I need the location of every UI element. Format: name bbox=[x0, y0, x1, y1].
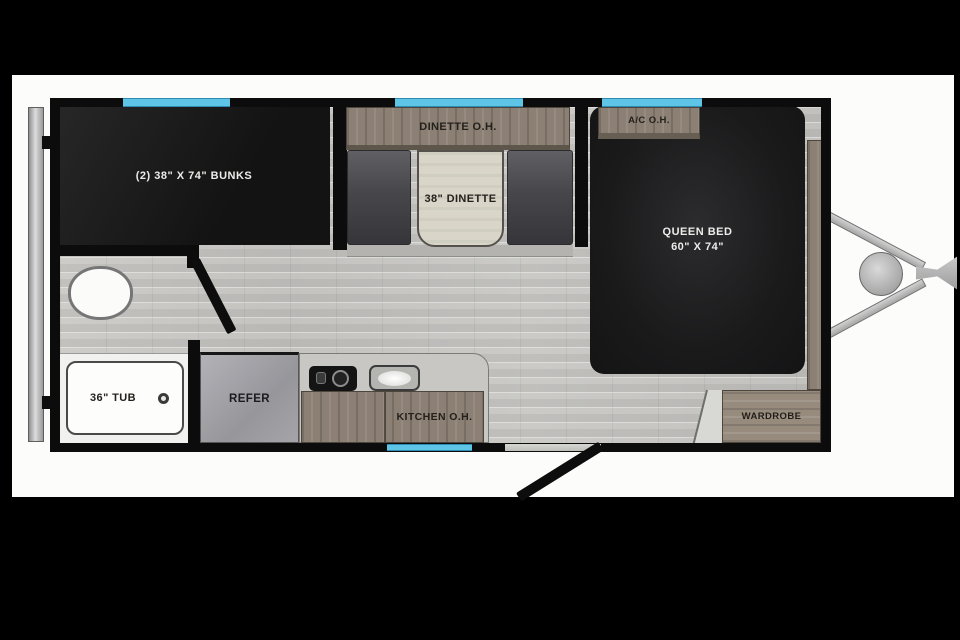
queen-bed-label-line2: 60" X 74" bbox=[671, 240, 724, 255]
dinette-bench-left bbox=[347, 150, 411, 245]
floorplan-screenshot: (2) 38" X 74" BUNKS 36" TUB REFER KITCHE… bbox=[0, 0, 960, 640]
bunk-bed-label: (2) 38" X 74" BUNKS bbox=[58, 106, 330, 245]
wardrobe: WARDROBE bbox=[722, 390, 821, 443]
tub-drain bbox=[158, 393, 169, 404]
dinette-bench-right bbox=[507, 150, 573, 245]
bunk-bed: (2) 38" X 74" BUNKS bbox=[58, 106, 330, 245]
bathtub: 36" TUB bbox=[66, 361, 184, 435]
queen-bed-label: QUEEN BED 60" X 74" bbox=[590, 106, 805, 374]
kitchen-overhead-label: KITCHEN O.H. bbox=[386, 392, 483, 442]
sink bbox=[369, 365, 420, 391]
window-bunks bbox=[123, 98, 230, 107]
dinette-table-label: 38" DINETTE bbox=[419, 152, 502, 245]
wall-right bbox=[821, 98, 831, 452]
queen-bed-label-line1: QUEEN BED bbox=[663, 225, 733, 240]
rear-bumper bbox=[28, 107, 44, 442]
ac-overhead-label: A/C O.H. bbox=[599, 108, 699, 133]
stove-burner-large bbox=[332, 370, 349, 387]
kitchen-overhead-cabinet: KITCHEN O.H. bbox=[301, 391, 484, 443]
wall-bathroom-kitchen bbox=[188, 340, 200, 452]
dinette-overhead-cabinet: DINETTE O.H. bbox=[346, 107, 570, 150]
toilet bbox=[68, 266, 133, 320]
dinette-overhead-label: DINETTE O.H. bbox=[347, 108, 569, 145]
window-bedroom bbox=[602, 98, 702, 107]
stove-burner-small bbox=[316, 372, 326, 384]
wall-left bbox=[50, 98, 60, 452]
dinette-table: 38" DINETTE bbox=[417, 150, 504, 247]
queen-bed: QUEEN BED 60" X 74" bbox=[590, 106, 805, 374]
window-kitchen bbox=[387, 444, 472, 451]
stove-icon bbox=[309, 366, 357, 391]
bedside-counter-strip bbox=[807, 140, 822, 390]
refrigerator: REFER bbox=[200, 352, 299, 443]
wardrobe-label: WARDROBE bbox=[723, 391, 820, 442]
sink-basin bbox=[378, 371, 411, 386]
ac-overhead-cabinet: A/C O.H. bbox=[598, 107, 700, 139]
propane-tank bbox=[859, 252, 903, 296]
wall-bathroom-top bbox=[57, 245, 195, 256]
window-dinette bbox=[395, 98, 523, 107]
wall-bunks-dinette bbox=[333, 106, 347, 250]
refrigerator-label: REFER bbox=[201, 355, 298, 442]
wall-dinette-bedroom bbox=[575, 107, 588, 247]
